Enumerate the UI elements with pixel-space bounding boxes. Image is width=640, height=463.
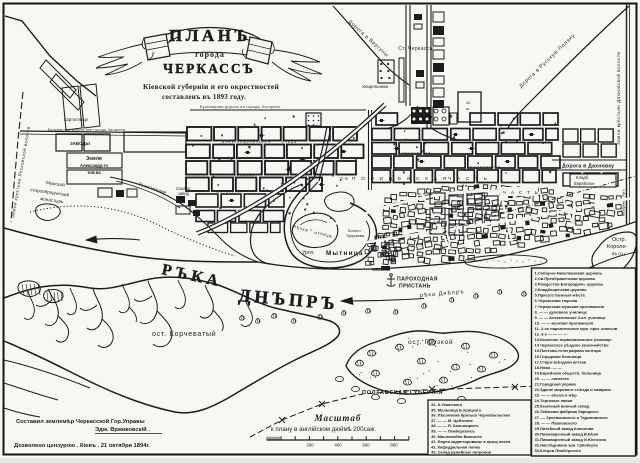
svg-text:Кладб.: Кладб. <box>576 175 589 180</box>
svg-text:20. — — синагога: 20. — — синагога <box>535 376 570 381</box>
svg-text:Болото: Болото <box>348 229 361 233</box>
svg-text:29.Литейный завод Клионова: 29.Литейный завод Клионова <box>535 426 595 431</box>
svg-text:Остр.: Остр. <box>612 237 627 243</box>
svg-text:2-я: 2-я <box>340 176 348 181</box>
svg-text:33.Котцов Лемберского: 33.Котцов Лемберского <box>535 448 582 453</box>
svg-text:26.Табачная фабрика Зарицкого: 26.Табачная фабрика Зарицкого <box>535 409 600 414</box>
svg-text:Ч А С Т Ь: Ч А С Т Ь <box>448 176 489 182</box>
svg-text:400: 400 <box>334 443 342 448</box>
svg-text:Хищельники: Хищельники <box>362 84 388 89</box>
svg-text:Ст. Черкассы: Ст. Черкассы <box>398 46 434 52</box>
svg-text:Бульварная дорога изъ города Ч: Бульварная дорога изъ города Чигирина <box>48 128 125 132</box>
svg-text:34. А.Уманского: 34. А.Уманского <box>431 402 463 407</box>
svg-text:Бульварная дорога на городъ Чи: Бульварная дорога на городъ Чигиринъ <box>200 105 281 109</box>
svg-text:Составил землемѣр Черкасской Г: Составил землемѣр Черкасской Гор.Управы <box>16 418 145 425</box>
svg-text:8. — — духовное училище: 8. — — духовное училище <box>535 309 588 314</box>
svg-text:Мытница: Мытница <box>326 250 364 257</box>
svg-text:Надпольная: Надпольная <box>470 165 501 169</box>
svg-text:10. — — женская прогимназія: 10. — — женская прогимназія <box>535 320 594 325</box>
svg-text:2.Св.Преображенская церковь: 2.Св.Преображенская церковь <box>535 276 596 281</box>
svg-text:въ о-ц: въ о-ц <box>612 251 625 256</box>
svg-text:завод: завод <box>178 191 190 196</box>
svg-text:12. 3-е — — — —: 12. 3-е — — — — <box>535 332 568 337</box>
svg-text:Земли крестьян Дахновской воло: Земли крестьян Дахновской волости <box>615 52 621 145</box>
svg-text:составленъ въ 1893 году.: составленъ въ 1893 году. <box>162 93 246 101</box>
svg-text:Смѣлянская: Смѣлянская <box>210 157 242 161</box>
svg-text:22.Зданіе мирового съѣзда и ка: 22.Зданіе мирового съѣзда и казармы <box>535 387 612 392</box>
svg-text:1.Соборно-Николаевская церковь: 1.Соборно-Николаевская церковь <box>535 271 603 276</box>
svg-text:ш: ш <box>466 106 469 111</box>
svg-text:Еврейское: Еврейское <box>574 181 595 186</box>
svg-text:35. Мельница Б.Урицкого: 35. Мельница Б.Урицкого <box>431 407 482 412</box>
svg-text:200: 200 <box>306 443 314 448</box>
svg-text:Суворовская: Суворовская <box>398 151 432 155</box>
svg-text:4.Кладбищенская церковь: 4.Кладбищенская церковь <box>535 287 588 292</box>
svg-text:18.Ново- — —: 18.Ново- — — <box>535 365 562 370</box>
svg-text:24.Торговыя лавки: 24.Торговыя лавки <box>535 398 573 403</box>
svg-text:32.Наслѣдников зем. Грянберга: 32.Наслѣдников зем. Грянберга <box>535 443 599 448</box>
svg-text:21.Городская управа: 21.Городская управа <box>535 382 577 387</box>
svg-text:9. — — Алексеевское 2-кл. учил: 9. — — Алексеевское 2-кл. училище <box>535 315 607 320</box>
svg-text:ПРИСТАНЬ: ПРИСТАНЬ <box>399 284 431 290</box>
svg-text:Александр-го: Александр-го <box>80 163 109 168</box>
svg-text:Картоплище: Картоплище <box>64 117 89 122</box>
svg-text:42. Кафедральная попка: 42. Кафедральная попка <box>431 444 481 449</box>
svg-text:Турукаева: Турукаева <box>346 234 365 238</box>
svg-text:15.Почтово-телеграфная контора: 15.Почтово-телеграфная контора <box>535 348 602 353</box>
svg-text:Короле-: Короле- <box>607 244 628 250</box>
svg-text:40. Масловойня Ванского: 40. Масловойня Ванского <box>431 434 482 439</box>
svg-text:улица: улица <box>282 140 297 144</box>
svg-text:ПЛАНЪ: ПЛАНЪ <box>169 26 251 45</box>
svg-text:ПАРОХОДНАЯ: ПАРОХОДНАЯ <box>397 277 438 283</box>
svg-text:ост. Корчеватый: ост. Корчеватый <box>152 330 217 338</box>
svg-text:ЧЕРКАССЪ: ЧЕРКАССЪ <box>163 61 255 76</box>
svg-text:7.Черкасская мужская прогимназ: 7.Черкасская мужская прогимназія <box>535 304 605 309</box>
svg-text:ул.: ул. <box>470 138 478 142</box>
svg-text:ост. Грузкой: ост. Грузкой <box>408 338 453 346</box>
svg-text:600: 600 <box>362 443 370 448</box>
svg-text:43. Склад ружейных патронов: 43. Склад ружейных патронов <box>431 450 492 455</box>
svg-text:23. — — вѣсов и мѣр: 23. — — вѣсов и мѣр <box>535 393 578 398</box>
svg-text:38. — — Я. Кальницкого: 38. — — Я. Кальницкого <box>431 423 479 428</box>
svg-text:3.Рождество-Богородичн. церков: 3.Рождество-Богородичн. церковь <box>535 282 604 287</box>
svg-text:Ч А С Т Ь: Ч А С Т Ь <box>503 190 540 195</box>
svg-text:ПОЛТАВСКАЯ ГУБЕРНІЯ: ПОЛТАВСКАЯ ГУБЕРНІЯ <box>362 390 443 396</box>
svg-text:11. 2-ое параллельное муж. при: 11. 2-ое параллельное муж. приг. классов <box>535 326 618 331</box>
svg-text:30.Пивоваренный завод Б.Бѣня: 30.Пивоваренный завод Б.Бѣня <box>535 431 600 436</box>
svg-text:31.Пивоваренный завод И.Юенсон: 31.Пивоваренный завод И.Юенсона <box>535 437 607 442</box>
svg-text:ЗАВОДЫ: ЗАВОДЫ <box>70 141 90 146</box>
svg-text:города: города <box>195 50 225 59</box>
svg-text:тов-ва: тов-ва <box>87 170 101 175</box>
svg-text:Масштаб: Масштаб <box>314 413 362 423</box>
svg-text:Александровская: Александровская <box>222 140 268 144</box>
svg-text:к плану в англійском дюймѣ 200: к плану в англійском дюймѣ 200саж. <box>271 426 376 433</box>
svg-text:Гоголевская: Гоголевская <box>405 138 437 142</box>
svg-text:39. — — Лемберскихъ: 39. — — Лемберскихъ <box>431 429 475 434</box>
svg-text:37. — — М. Цейтлина: 37. — — М. Цейтлина <box>431 418 473 423</box>
svg-text:17.Старо-заѣздная аптека: 17.Старо-заѣздная аптека <box>535 359 587 364</box>
svg-text:ул.: ул. <box>262 157 270 161</box>
svg-text:14.Черкасское уѣздное казначей: 14.Черкасское уѣздное казначейство <box>535 343 610 348</box>
svg-text:6.Черкасская тюрьма: 6.Черкасская тюрьма <box>535 298 578 303</box>
svg-text:Дозволено цензурою . Кіевъ . 2: Дозволено цензурою . Кіевъ . 21 октября … <box>14 442 150 449</box>
svg-text:800: 800 <box>390 443 398 448</box>
svg-text:Дорога в Дахновку: Дорога в Дахновку <box>562 164 614 170</box>
svg-text:16.Городская больница: 16.Городская больница <box>535 354 582 359</box>
svg-text:28. — — Павловского: 28. — — Павловского <box>535 420 578 425</box>
svg-text:13.Казенное первоначальное учи: 13.Казенное первоначальное училище <box>535 337 613 342</box>
svg-text:19.Еврейская обществ. больница: 19.Еврейская обществ. больница <box>535 370 602 375</box>
svg-text:36. Лѣсопилка братьев Чернобыл: 36. Лѣсопилка братьев Чернобыльских <box>431 413 511 418</box>
svg-text:Цыганская: Цыганская <box>216 190 244 194</box>
svg-text:Земля: Земля <box>86 156 102 162</box>
svg-text:42: 42 <box>466 100 471 105</box>
svg-text:Троицкая: Троицкая <box>231 173 255 177</box>
svg-text:5.Присутственныя мѣста: 5.Присутственныя мѣста <box>535 293 586 298</box>
svg-text:Эдм. Вржиковскій .: Эдм. Вржиковскій . <box>95 426 150 433</box>
svg-text:27. — Зритиковского и Тадиновс: 27. — Зритиковского и Тадиновского <box>535 415 609 420</box>
svg-text:Кіевской губерніи и его окрест: Кіевской губерніи и его окрестностей <box>143 82 279 91</box>
svg-text:25.Казенный винный склад: 25.Казенный винный склад <box>535 404 590 409</box>
svg-text:41. Евреи кадаптированы в прощ: 41. Евреи кадаптированы в прощ покла <box>431 439 511 444</box>
